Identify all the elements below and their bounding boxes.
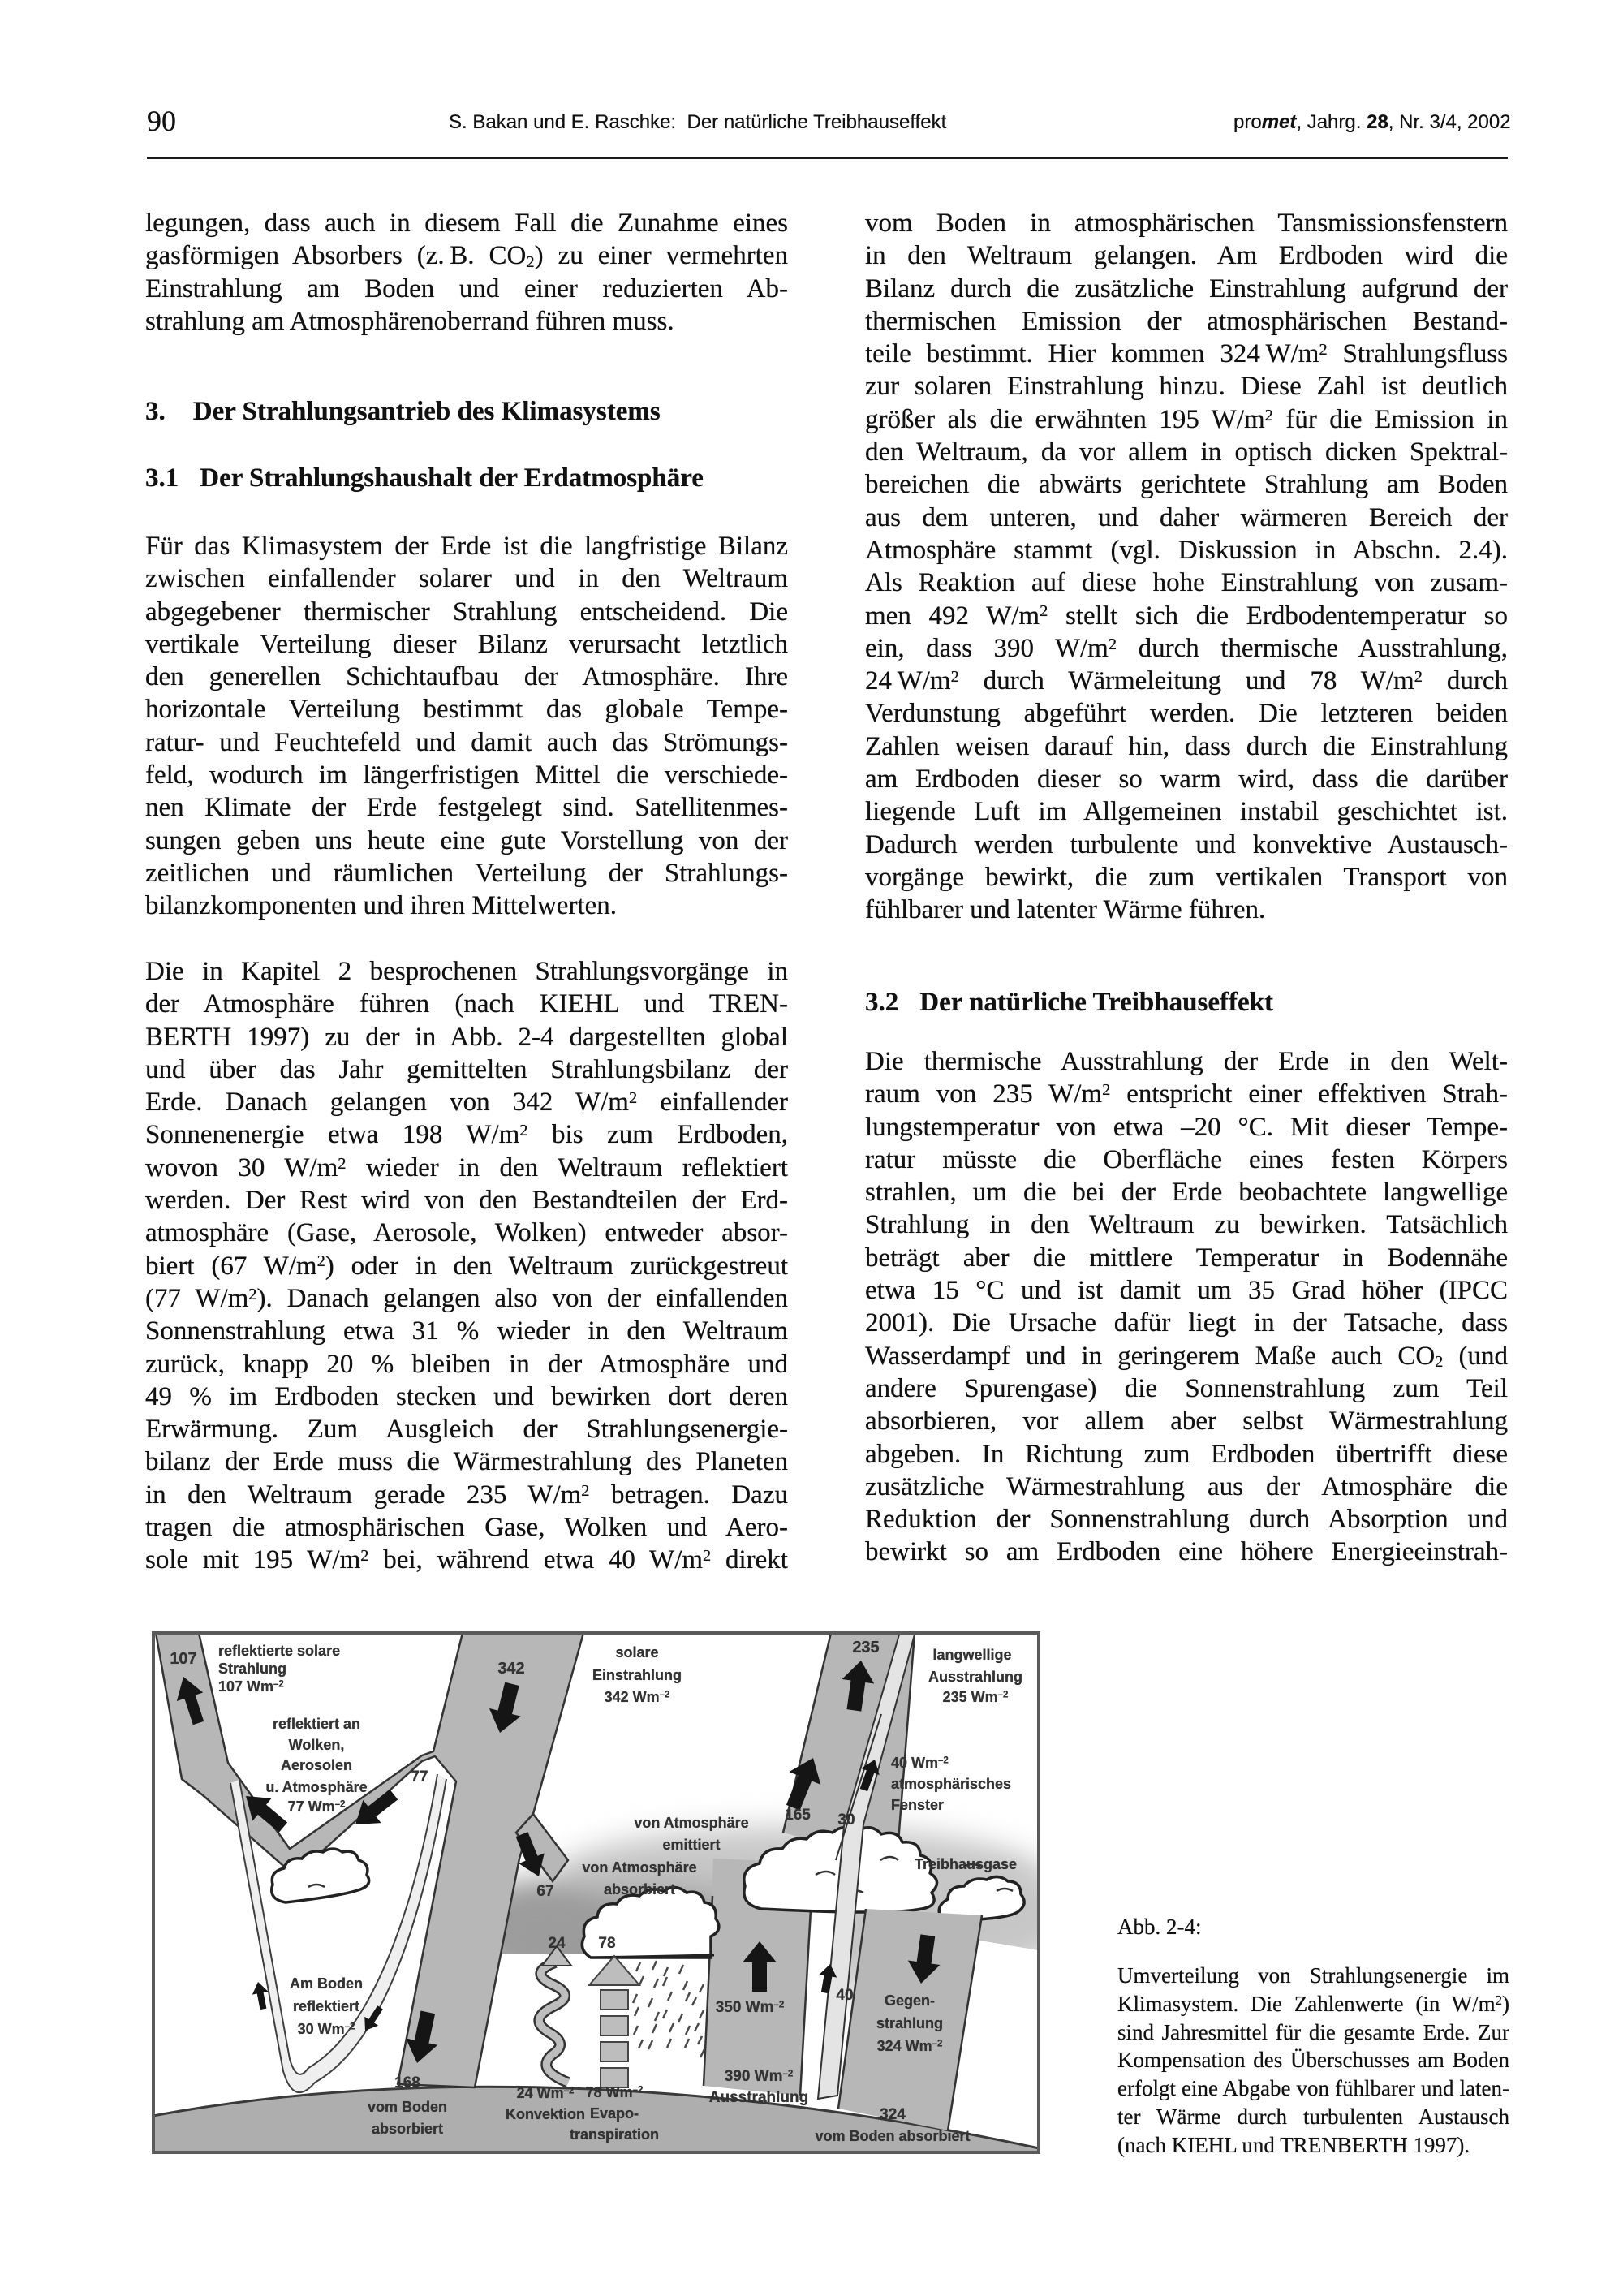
svg-text:emittiert: emittiert bbox=[662, 1837, 720, 1853]
svg-text:absorbiert: absorbiert bbox=[604, 1881, 675, 1898]
svg-text:u. Atmosphäre: u. Atmosphäre bbox=[265, 1779, 367, 1795]
svg-text:transpiration: transpiration bbox=[570, 2126, 659, 2143]
svg-text:Einstrahlung: Einstrahlung bbox=[592, 1667, 682, 1683]
svg-text:solare: solare bbox=[615, 1644, 658, 1661]
svg-text:von Atmosphäre: von Atmosphäre bbox=[634, 1815, 748, 1831]
svg-text:Aerosolen: Aerosolen bbox=[281, 1757, 352, 1773]
svg-text:Evapo-: Evapo- bbox=[590, 2105, 639, 2122]
svg-text:Strahlung: Strahlung bbox=[218, 1661, 286, 1677]
svg-text:reflektiert an: reflektiert an bbox=[273, 1716, 360, 1732]
svg-text:atmosphärisches: atmosphärisches bbox=[891, 1776, 1011, 1792]
svg-text:Fenster: Fenster bbox=[891, 1797, 944, 1813]
svg-text:30: 30 bbox=[837, 1811, 855, 1829]
svg-text:107 Wm–2: 107 Wm–2 bbox=[218, 1678, 284, 1695]
svg-text:vom Boden absorbiert: vom Boden absorbiert bbox=[815, 2128, 970, 2144]
svg-text:reflektierte solare: reflektierte solare bbox=[218, 1643, 340, 1659]
svg-text:107: 107 bbox=[170, 1650, 196, 1668]
svg-text:Treibhausgase: Treibhausgase bbox=[915, 1856, 1017, 1872]
svg-text:24: 24 bbox=[548, 1935, 566, 1952]
svg-text:235 Wm–2: 235 Wm–2 bbox=[943, 1689, 1009, 1705]
svg-text:67: 67 bbox=[536, 1883, 553, 1900]
svg-text:342: 342 bbox=[497, 1660, 524, 1678]
svg-text:Ausstrahlung: Ausstrahlung bbox=[928, 1669, 1022, 1685]
svg-text:40: 40 bbox=[836, 1987, 853, 2004]
svg-text:absorbiert: absorbiert bbox=[372, 2121, 443, 2137]
svg-text:235: 235 bbox=[852, 1639, 879, 1656]
svg-text:Gegen-: Gegen- bbox=[885, 1992, 935, 2009]
svg-text:324: 324 bbox=[880, 2106, 906, 2123]
svg-text:langwellige: langwellige bbox=[932, 1647, 1011, 1663]
svg-text:77 Wm–2: 77 Wm–2 bbox=[288, 1798, 346, 1815]
svg-text:strahlung: strahlung bbox=[876, 2015, 943, 2031]
svg-text:Wolken,: Wolken, bbox=[289, 1737, 345, 1753]
svg-text:von Atmosphäre: von Atmosphäre bbox=[582, 1859, 696, 1876]
svg-text:Ausstrahlung: Ausstrahlung bbox=[709, 2089, 808, 2106]
svg-text:342 Wm–2: 342 Wm–2 bbox=[605, 1689, 670, 1705]
svg-text:78: 78 bbox=[598, 1935, 615, 1952]
svg-text:Am Boden: Am Boden bbox=[290, 1975, 363, 1992]
svg-text:reflektiert: reflektiert bbox=[293, 1998, 359, 2014]
svg-text:77: 77 bbox=[411, 1768, 428, 1786]
svg-text:168: 168 bbox=[394, 2074, 420, 2091]
svg-text:165: 165 bbox=[785, 1807, 811, 1824]
svg-text:vom Boden: vom Boden bbox=[368, 2099, 447, 2115]
svg-text:40 Wm–2: 40 Wm–2 bbox=[891, 1755, 949, 1771]
svg-text:Konvektion: Konvektion bbox=[506, 2106, 585, 2122]
